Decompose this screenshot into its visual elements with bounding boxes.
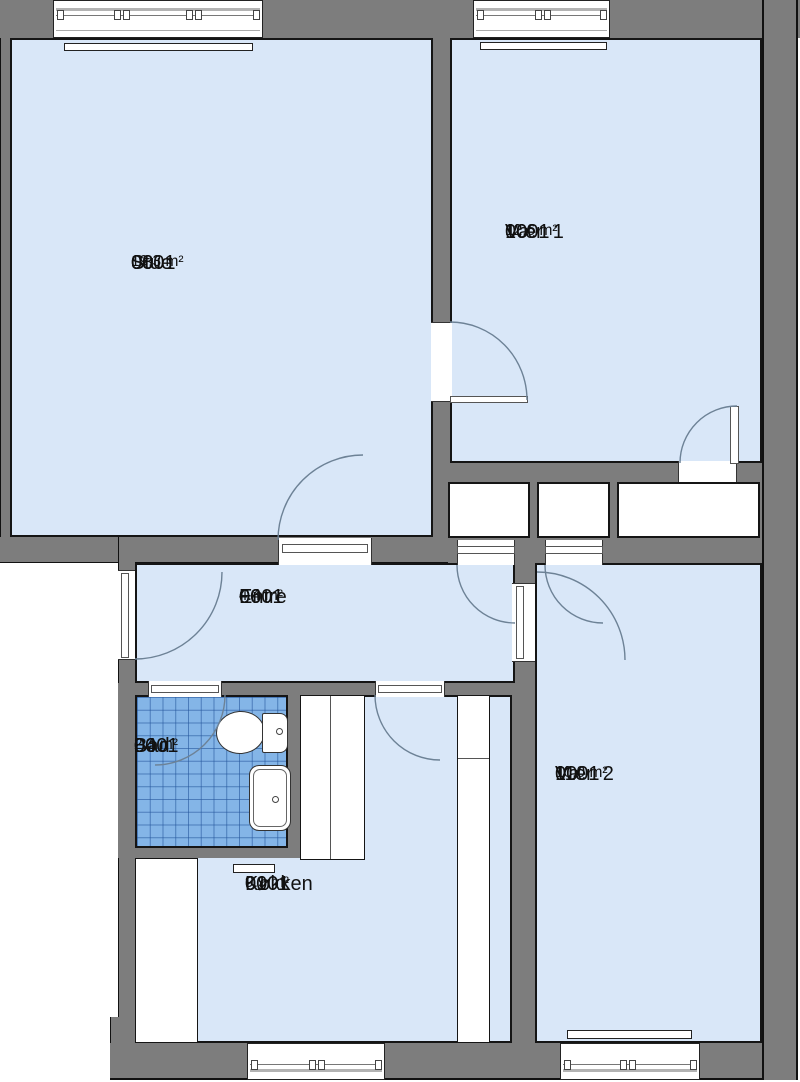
closet-2-door-leaf — [545, 546, 603, 554]
sink-fixture — [249, 765, 291, 831]
room-entre-floor — [135, 563, 515, 683]
radiator-vaer2 — [567, 1030, 692, 1039]
entry-door-leaf — [121, 573, 129, 658]
kitchen-tall-cabinet-divider — [458, 758, 489, 759]
room-area: 12.6 m² — [505, 221, 558, 240]
radiator-stue — [64, 43, 253, 51]
wall-stue-south — [0, 537, 450, 563]
radiator-vaer1 — [480, 42, 607, 50]
room-stue-floor — [10, 38, 433, 537]
room-vaer2-floor — [535, 563, 762, 1043]
window-vaer2 — [560, 1043, 700, 1080]
kitchen-counter-divider — [330, 696, 331, 859]
door-leaf-stue-vaer1 — [450, 396, 528, 403]
door-leaf-koekken — [378, 685, 442, 693]
closet-2 — [537, 482, 610, 538]
door-leaf-vaer1-closet — [730, 406, 739, 464]
door-leaf-vaer2 — [516, 586, 524, 659]
kitchen-counter-north — [300, 695, 365, 860]
closet-3 — [617, 482, 760, 538]
wall-right-exterior — [762, 0, 798, 1080]
window-vaer1 — [473, 0, 610, 38]
closet-1 — [448, 482, 530, 538]
door-opening-vaer1-closet — [678, 461, 737, 482]
sink-basin — [253, 769, 287, 827]
toilet-tank-fixture — [262, 713, 288, 753]
sink-drain — [272, 796, 279, 803]
room-area: 10.0 m² — [555, 763, 608, 782]
floor-plan: 0001 08 Stue 19.3 m² 0001 10 Vær. 1 12.6… — [0, 0, 800, 1082]
wall-stue-west — [0, 38, 10, 563]
toilet-flush-button — [276, 728, 283, 735]
room-area: 19.3 m² — [131, 252, 184, 271]
closet-1-door-leaf — [457, 546, 515, 554]
window-koekken — [247, 1043, 385, 1080]
kitchen-counter-west — [135, 858, 198, 1043]
door-leaf-bad — [151, 685, 219, 693]
room-area: 9.9 m² — [245, 873, 289, 892]
kitchen-tall-cabinet — [457, 695, 490, 1043]
wall-stue-vaer1-divider — [433, 38, 450, 537]
door-leaf-stue-entre — [282, 544, 368, 553]
room-area: 4.4 m² — [239, 586, 283, 605]
door-opening-stue-vaer1 — [431, 322, 452, 402]
room-area: 2.3 m² — [134, 735, 178, 754]
radiator-koekken — [233, 864, 275, 873]
window-stue — [53, 0, 263, 38]
